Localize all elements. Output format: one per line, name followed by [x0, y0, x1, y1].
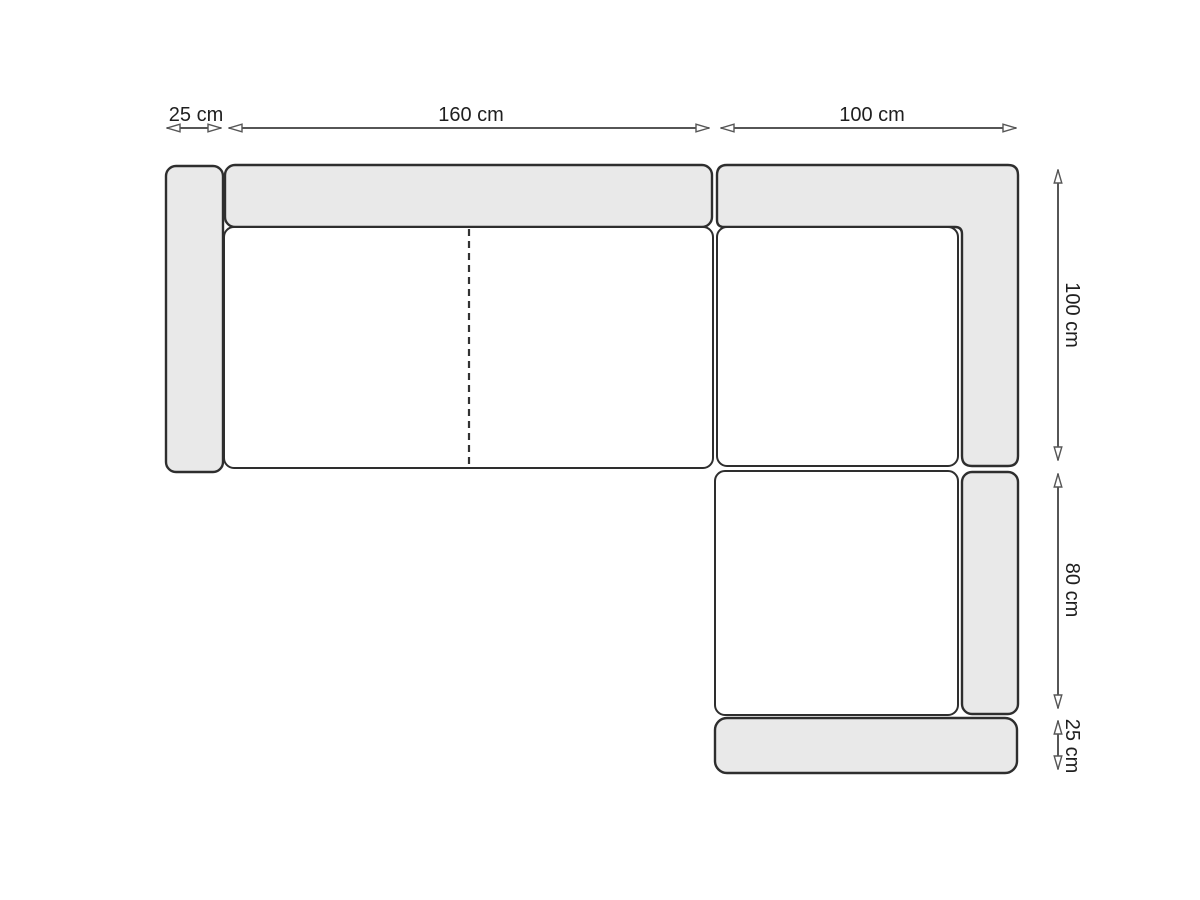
dim-label-seat-width: 160 cm: [438, 104, 504, 126]
chaise-seat: [715, 471, 958, 715]
front-armrest: [715, 718, 1017, 773]
dim-label-corner-depth: 100 cm: [1061, 282, 1083, 348]
left-armrest: [166, 166, 223, 472]
sofa-dimension-diagram: 25 cm 160 cm 100 cm 100 cm 80 cm 25 cm: [0, 0, 1200, 900]
right-armrest: [962, 472, 1018, 714]
back-cushion: [225, 165, 712, 227]
corner-seat: [717, 227, 958, 466]
dim-label-chaise-length: 80 cm: [1061, 563, 1083, 617]
dim-label-corner-width: 100 cm: [839, 104, 905, 126]
sofa-outline: [166, 165, 1018, 773]
main-seat: [224, 227, 713, 468]
dim-label-armrest-width: 25 cm: [169, 104, 223, 126]
dim-label-front-armrest-depth: 25 cm: [1061, 719, 1083, 773]
sofa-floorplan-svg: 25 cm 160 cm 100 cm 100 cm 80 cm 25 cm: [0, 0, 1200, 900]
